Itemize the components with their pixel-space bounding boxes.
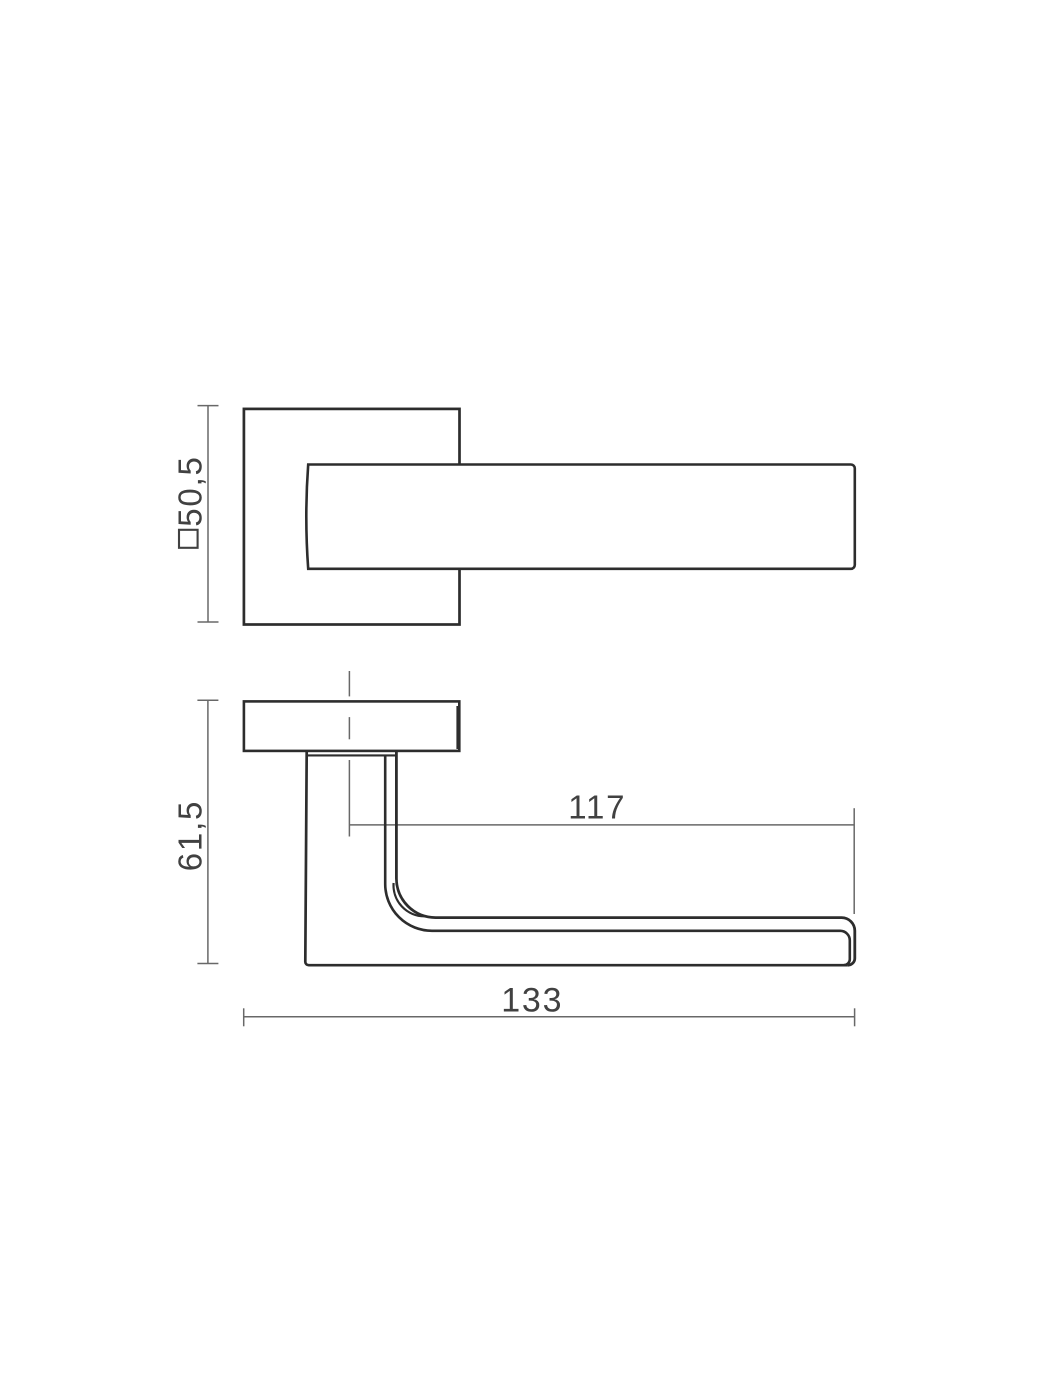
svg-text:61,5: 61,5 bbox=[171, 800, 208, 871]
svg-text:133: 133 bbox=[501, 982, 563, 1020]
svg-text:50,5: 50,5 bbox=[171, 455, 208, 526]
svg-text:117: 117 bbox=[568, 788, 626, 825]
